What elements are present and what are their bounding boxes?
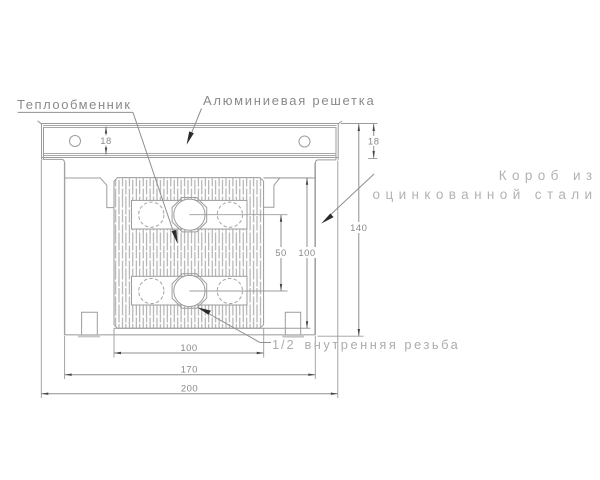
- svg-text:100: 100: [298, 248, 315, 259]
- svg-text:140: 140: [350, 223, 367, 234]
- svg-text:18: 18: [100, 136, 112, 147]
- svg-text:18: 18: [368, 137, 380, 148]
- svg-text:200: 200: [181, 384, 198, 395]
- svg-text:100: 100: [180, 343, 197, 354]
- svg-text:50: 50: [275, 248, 287, 259]
- svg-text:170: 170: [181, 365, 198, 376]
